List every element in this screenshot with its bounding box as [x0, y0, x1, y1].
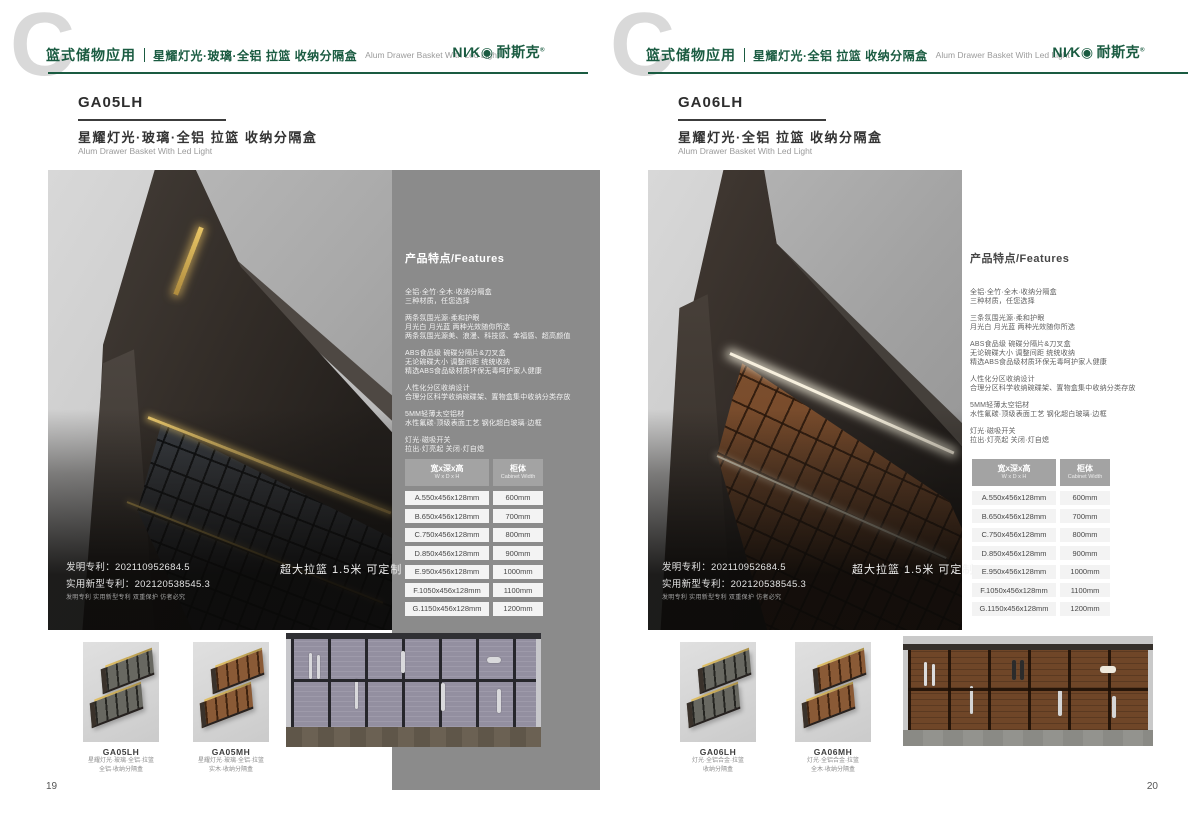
mini-drawer [687, 684, 741, 729]
page-header: 篮式储物应用 星耀灯光·全铝 拉篮 收纳分隔盒 Alum Drawer Bask… [646, 45, 1070, 65]
brand-logo-en: NI∕K◉ [452, 44, 493, 60]
feature-group: 人性化分区收纳设计合理分区科学收纳碗碟架、置物盒集中收纳分类存放 [405, 384, 600, 402]
brand-logo: NI∕K◉耐斯克® [452, 42, 545, 62]
brand-logo-cn: 耐斯克 [497, 44, 541, 60]
mini-drawer [200, 684, 254, 729]
size-table-row: E.950x456x128mm1000mm [972, 565, 1112, 579]
patent-info: 发明专利：202110952684.5 实用新型专利：202120538545.… [66, 559, 210, 603]
product-code: GA06LH [678, 94, 743, 111]
feature-group: 灯光·磁吸开关拉出·灯亮起 关闭·灯自熄 [970, 427, 1165, 445]
page-number: 20 [1147, 781, 1158, 792]
catalog-page-right: C 篮式储物应用 星耀灯光·全铝 拉篮 收纳分隔盒 Alum Drawer Ba… [600, 0, 1200, 820]
size-table-header: 宽x深x高 W x D x H 柜体 Cabinet Width [405, 459, 545, 486]
features-list: 全铝·全竹·全木·收纳分隔盒三种材质，任您选择两条氛围光源·柔和护眼月光白 月光… [405, 288, 600, 454]
thumbnail-label-1: GA06LH 灯光·全铝合金·拉篮 收纳分隔盒 [663, 747, 773, 774]
features-section: 产品特点/Features 全铝·全竹·全木·收纳分隔盒三种材质，任您选择两条氛… [405, 250, 600, 462]
brand-logo-cn: 耐斯克 [1097, 44, 1141, 60]
size-table-row: A.550x456x128mm600mm [972, 491, 1112, 505]
features-section: 产品特点/Features 全铝·全竹·全木·收纳分隔盒三种材质，任您选择三条氛… [970, 250, 1165, 453]
page-header: 篮式储物应用 星耀灯光·玻璃·全铝 拉篮 收纳分隔盒 Alum Drawer B… [46, 45, 499, 65]
product-code-underline [678, 119, 826, 121]
feature-group: 5MM轻薄太空铝材水性氟碳·顶级表面工艺 钢化超白玻璃·边框 [405, 410, 600, 428]
catalog-page-left: C 篮式储物应用 星耀灯光·玻璃·全铝 拉篮 收纳分隔盒 Alum Drawer… [0, 0, 600, 820]
cabinet-column-header: 柜体 Cabinet Width [1060, 459, 1110, 486]
header-category: 篮式储物应用 [646, 45, 736, 65]
thumbnail-photo-2 [193, 642, 269, 742]
feature-group: ABS食品级 碗碟分隔片&刀叉盒无论碗碟大小 调整间距 统统收纳精选ABS食品级… [970, 340, 1165, 367]
header-category: 篮式储物应用 [46, 45, 136, 65]
features-heading: 产品特点/Features [405, 250, 600, 266]
brand-logo-en: NI∕K◉ [1052, 44, 1093, 60]
size-table-row: A.550x456x128mm600mm [405, 491, 545, 505]
thumbnail-label-2: GA05MH 星耀灯光·玻璃·全铝·拉篮 实木·收纳分隔盒 [176, 747, 286, 774]
features-list: 全铝·全竹·全木·收纳分隔盒三种材质，任您选择三条氛围光源·柔和护眼月光白 月光… [970, 288, 1165, 445]
custom-size-badge: 超大拉篮 1.5米 可定制 [852, 561, 974, 577]
product-title: 星耀灯光·全铝 拉篮 收纳分隔盒 [678, 127, 883, 146]
size-table-row: G.1150x456x128mm1200mm [972, 602, 1112, 616]
header-divider [144, 48, 145, 62]
product-title: 星耀灯光·玻璃·全铝 拉篮 收纳分隔盒 [78, 127, 317, 146]
gray-floor [903, 730, 1153, 746]
size-table: 宽x深x高 W x D x H 柜体 Cabinet Width A.550x4… [405, 459, 545, 616]
header-subtitle-en: Alum Drawer Basket With Led Light [936, 50, 1070, 60]
thumbnail-photo-1 [83, 642, 159, 742]
size-table-row: B.650x456x128mm700mm [405, 509, 545, 523]
size-table-row: E.950x456x128mm1000mm [405, 565, 545, 579]
mini-drawer [90, 684, 144, 729]
size-table-rows: A.550x456x128mm600mmB.650x456x128mm700mm… [972, 491, 1112, 616]
thumbnail-photo-2 [795, 642, 871, 742]
size-table: 宽x深x高 W x D x H 柜体 Cabinet Width A.550x4… [972, 459, 1112, 616]
size-table-row: G.1150x456x128mm1200mm [405, 602, 545, 616]
organizer-top-view-photo [903, 636, 1153, 746]
thumbnail-label-1: GA05LH 星耀灯光·玻璃·全铝·拉篮 全铝·收纳分隔盒 [66, 747, 176, 774]
custom-size-badge: 超大拉篮 1.5米 可定制 [280, 561, 402, 577]
thumbnail-label-2: GA06MH 灯光·全铝合金·拉篮 全木·收纳分隔盒 [778, 747, 888, 774]
feature-group: 人性化分区收纳设计合理分区科学收纳碗碟架、置物盒集中收纳分类存放 [970, 375, 1165, 393]
cabinet-column-header: 柜体 Cabinet Width [493, 459, 543, 486]
header-divider [744, 48, 745, 62]
feature-group: ABS食品级 碗碟分隔片&刀叉盒无论碗碟大小 调整间距 统统收纳精选ABS食品级… [405, 349, 600, 376]
page-number: 19 [46, 781, 57, 792]
size-table-rows: A.550x456x128mm600mmB.650x456x128mm700mm… [405, 491, 545, 616]
invention-patent: 发明专利：202110952684.5 [662, 559, 806, 576]
product-title-en: Alum Drawer Basket With Led Light [78, 146, 212, 156]
header-subtitle: 星耀灯光·全铝 拉篮 收纳分隔盒 [753, 47, 928, 64]
organizer-tray [291, 639, 536, 727]
patent-notice: 发明专利 实用新型专利 双重保护 仿者必究 [66, 593, 210, 603]
utility-patent: 实用新型专利：202120538545.3 [662, 576, 806, 593]
header-rule [48, 72, 588, 74]
registered-mark: ® [1140, 47, 1145, 53]
wood-floor [286, 727, 541, 747]
product-title-en: Alum Drawer Basket With Led Light [678, 146, 812, 156]
feature-group: 三条氛围光源·柔和护眼月光白 月光蓝 两种光效随你所选 [970, 314, 1165, 332]
size-table-row: F.1050x456x128mm1100mm [405, 583, 545, 597]
thumbnail-photo-1 [680, 642, 756, 742]
product-code: GA05LH [78, 94, 143, 111]
registered-mark: ® [540, 47, 545, 53]
header-subtitle: 星耀灯光·玻璃·全铝 拉篮 收纳分隔盒 [153, 47, 357, 64]
size-column-header: 宽x深x高 W x D x H [972, 459, 1056, 486]
feature-group: 全铝·全竹·全木·收纳分隔盒三种材质，任您选择 [970, 288, 1165, 306]
organizer-top-view-photo [286, 633, 541, 747]
size-table-row: F.1050x456x128mm1100mm [972, 583, 1112, 597]
size-table-row: D.850x456x128mm900mm [405, 546, 545, 560]
features-heading: 产品特点/Features [970, 250, 1165, 266]
size-column-header: 宽x深x高 W x D x H [405, 459, 489, 486]
feature-group: 两条氛围光源·柔和护眼月光白 月光蓝 两种光效随你所选两条氛围光源美、浪漫、科技… [405, 314, 600, 341]
organizer-tray [908, 650, 1148, 730]
feature-group: 全铝·全竹·全木·收纳分隔盒三种材质，任您选择 [405, 288, 600, 306]
patent-info: 发明专利：202110952684.5 实用新型专利：202120538545.… [662, 559, 806, 603]
size-table-row: B.650x456x128mm700mm [972, 509, 1112, 523]
size-table-row: C.750x456x128mm800mm [972, 528, 1112, 542]
mini-drawer [802, 684, 856, 729]
size-table-row: D.850x456x128mm900mm [972, 546, 1112, 560]
patent-notice: 发明专利 实用新型专利 双重保护 仿者必究 [662, 593, 806, 603]
size-table-row: C.750x456x128mm800mm [405, 528, 545, 542]
brand-logo: NI∕K◉耐斯克® [1052, 42, 1145, 62]
feature-group: 5MM轻薄太空铝材水性氟碳·顶级表面工艺 钢化超白玻璃·边框 [970, 401, 1165, 419]
invention-patent: 发明专利：202110952684.5 [66, 559, 210, 576]
size-table-header: 宽x深x高 W x D x H 柜体 Cabinet Width [972, 459, 1112, 486]
utility-patent: 实用新型专利：202120538545.3 [66, 576, 210, 593]
feature-group: 灯光·磁吸开关拉出·灯亮起 关闭·灯自熄 [405, 436, 600, 454]
header-rule [648, 72, 1188, 74]
product-code-underline [78, 119, 226, 121]
